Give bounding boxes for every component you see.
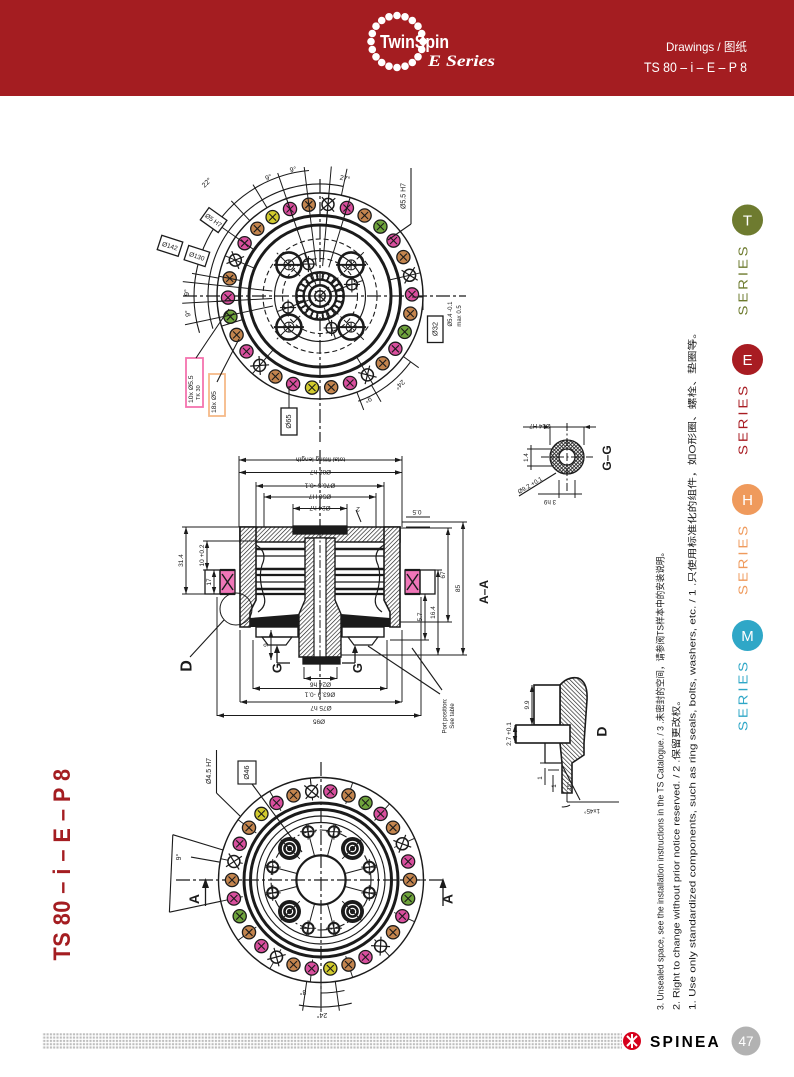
svg-text:E: E bbox=[742, 352, 752, 369]
svg-text:Ø5.4 -0.1: Ø5.4 -0.1 bbox=[448, 301, 454, 327]
svg-text:5.7: 5.7 bbox=[417, 612, 424, 621]
svg-text:G–G: G–G bbox=[600, 445, 614, 470]
svg-text:0.5: 0.5 bbox=[412, 508, 421, 515]
svg-text:A: A bbox=[440, 894, 456, 904]
svg-text:1.4: 1.4 bbox=[523, 453, 530, 462]
svg-text:8°: 8° bbox=[299, 988, 306, 996]
svg-text:2.7 +0.1: 2.7 +0.1 bbox=[506, 722, 513, 746]
svg-text:Ø24 h7: Ø24 h7 bbox=[309, 504, 331, 511]
svg-text:2. Right to change without pri: 2. Right to change without prior notice … bbox=[671, 695, 682, 1010]
svg-text:Ø65: Ø65 bbox=[284, 414, 293, 428]
svg-text:9°: 9° bbox=[175, 853, 183, 860]
svg-text:16.4: 16.4 bbox=[430, 606, 437, 619]
svg-text:Ø4.5 H7: Ø4.5 H7 bbox=[206, 758, 213, 784]
svg-text:1. Use only standardized compo: 1. Use only standardized components, suc… bbox=[687, 327, 698, 1010]
svg-text:3. Unsealed space, see the ins: 3. Unsealed space, see the installation … bbox=[655, 548, 666, 1010]
svg-text:E Series: E Series bbox=[427, 53, 495, 70]
svg-text:TS 80 – i – E – P 8: TS 80 – i – E – P 8 bbox=[49, 769, 76, 961]
svg-text:24°: 24° bbox=[317, 1011, 328, 1019]
svg-text:15°: 15° bbox=[567, 782, 573, 791]
svg-text:18x Ø5: 18x Ø5 bbox=[211, 391, 218, 413]
svg-text:TS 80 – i – E – P 8: TS 80 – i – E – P 8 bbox=[644, 59, 747, 75]
svg-text:T: T bbox=[743, 213, 752, 230]
svg-text:D: D bbox=[179, 660, 196, 672]
svg-text:Ø24 h6: Ø24 h6 bbox=[309, 681, 331, 688]
svg-text:Ø56 H7: Ø56 H7 bbox=[308, 493, 331, 500]
svg-text:1: 1 bbox=[551, 784, 558, 788]
svg-text:10x Ø5.5: 10x Ø5.5 bbox=[188, 375, 195, 403]
svg-text:SERIES: SERIES bbox=[736, 523, 751, 595]
svg-text:Ø32: Ø32 bbox=[431, 322, 440, 336]
svg-text:Ø75 h7: Ø75 h7 bbox=[310, 704, 332, 711]
svg-text:SERIES: SERIES bbox=[736, 383, 751, 455]
svg-text:Ø82 h7: Ø82 h7 bbox=[309, 468, 331, 475]
svg-text:9.9: 9.9 bbox=[524, 700, 531, 709]
svg-text:1x45°: 1x45° bbox=[584, 807, 600, 814]
svg-text:SERIES: SERIES bbox=[736, 659, 751, 731]
svg-text:See table: See table bbox=[450, 703, 456, 729]
svg-text:Ø14 H7: Ø14 H7 bbox=[529, 422, 551, 429]
svg-text:3 h9: 3 h9 bbox=[543, 498, 556, 505]
svg-text:2: 2 bbox=[356, 505, 360, 512]
svg-text:9°: 9° bbox=[183, 289, 191, 296]
svg-text:1: 1 bbox=[537, 776, 544, 780]
svg-text:9°: 9° bbox=[184, 309, 193, 317]
svg-text:TK 30: TK 30 bbox=[196, 385, 202, 400]
svg-text:total fitting length: total fitting length bbox=[296, 456, 346, 463]
svg-text:Ø46: Ø46 bbox=[242, 765, 251, 779]
svg-text:Ø95: Ø95 bbox=[312, 718, 325, 725]
svg-text:85: 85 bbox=[455, 585, 462, 593]
svg-text:Port position:: Port position: bbox=[443, 698, 449, 733]
svg-text:max 0.5: max 0.5 bbox=[457, 305, 463, 327]
svg-text:TwinSpin: TwinSpin bbox=[380, 32, 449, 52]
svg-text:Ø76.5 -0.1: Ø76.5 -0.1 bbox=[304, 482, 335, 489]
svg-text:10 +0.2: 10 +0.2 bbox=[199, 544, 206, 566]
svg-text:G: G bbox=[270, 663, 285, 673]
svg-text:G: G bbox=[350, 663, 365, 673]
svg-text:47: 47 bbox=[738, 1034, 753, 1049]
svg-text:SERIES: SERIES bbox=[736, 244, 751, 316]
svg-text:9: 9 bbox=[263, 643, 270, 647]
svg-text:17: 17 bbox=[206, 578, 213, 586]
svg-text:Ø5.5 H7: Ø5.5 H7 bbox=[401, 183, 408, 209]
svg-text:Ø63.9 -0.1: Ø63.9 -0.1 bbox=[304, 691, 335, 698]
svg-text:M: M bbox=[741, 628, 754, 645]
svg-text:A–A: A–A bbox=[477, 580, 491, 604]
svg-text:A: A bbox=[186, 894, 202, 904]
svg-text:67: 67 bbox=[440, 571, 447, 579]
svg-text:31.4: 31.4 bbox=[178, 554, 185, 567]
svg-text:SPINEA: SPINEA bbox=[650, 1034, 721, 1051]
svg-text:D: D bbox=[594, 726, 610, 736]
svg-text:Drawings / 图纸: Drawings / 图纸 bbox=[666, 40, 747, 54]
svg-text:H: H bbox=[742, 492, 753, 509]
